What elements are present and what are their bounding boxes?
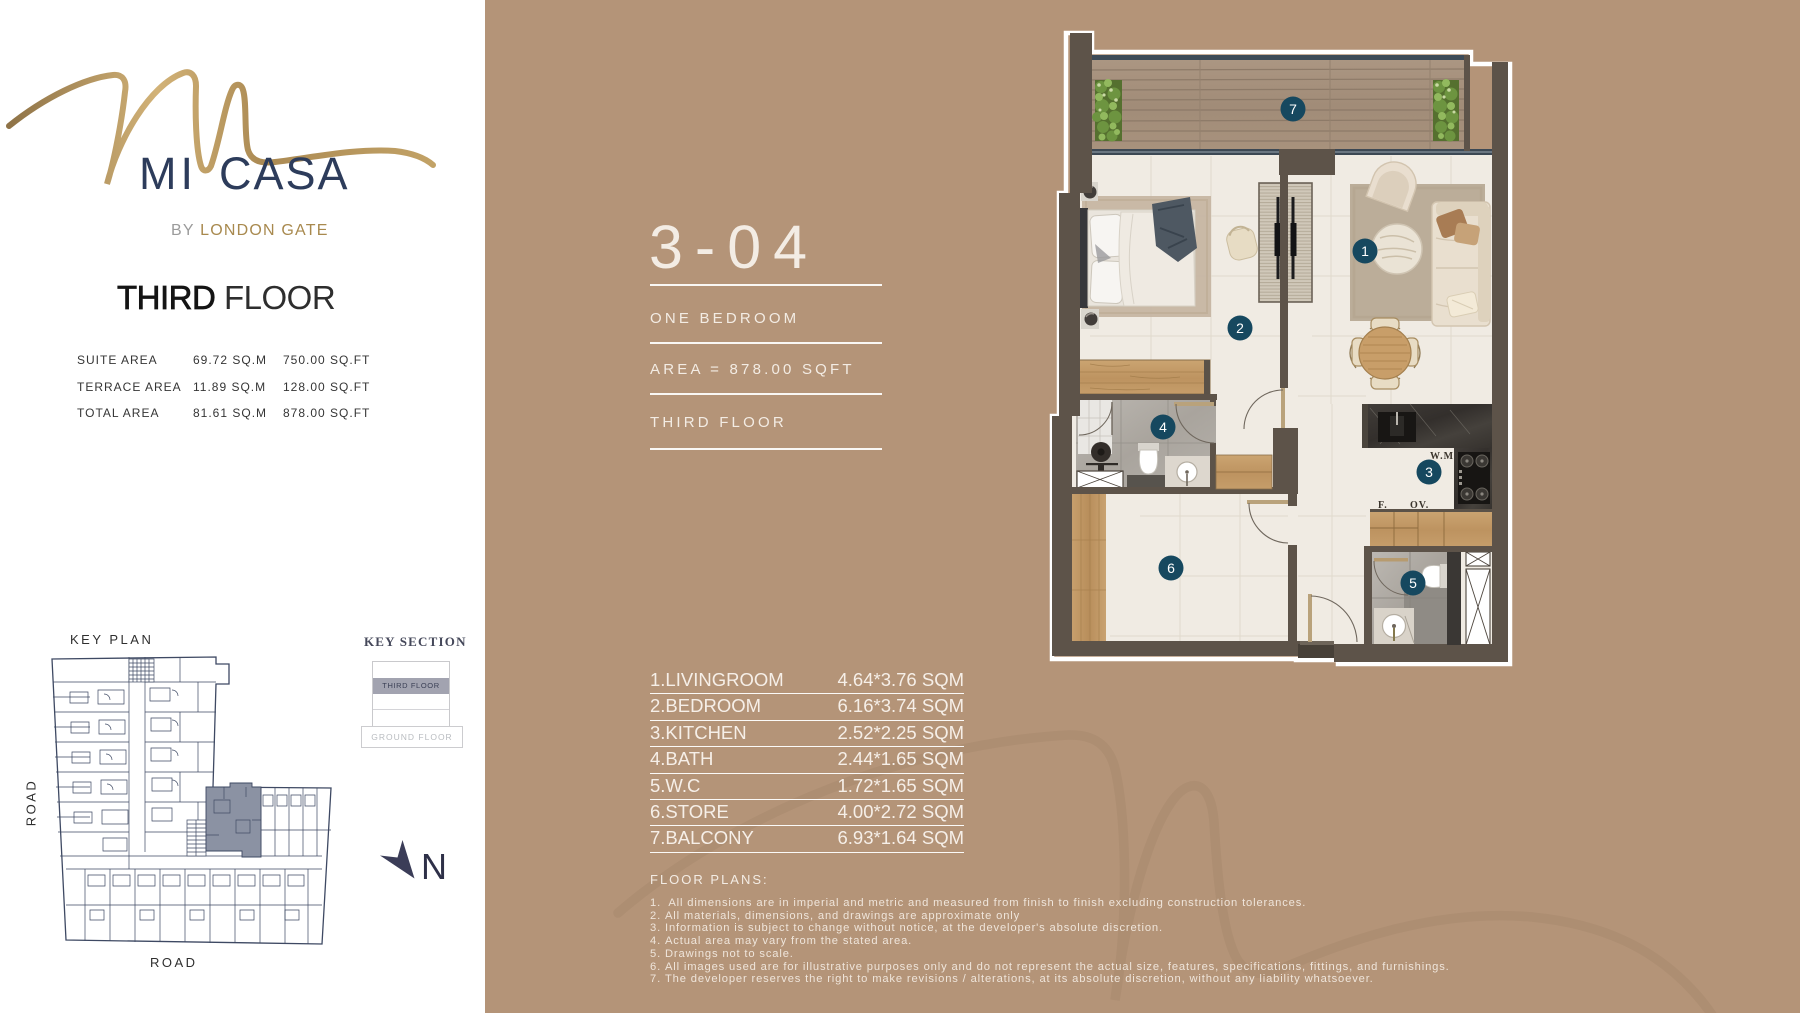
svg-text:W.M: W.M: [1430, 451, 1454, 462]
svg-text:1: 1: [1361, 243, 1369, 259]
svg-text:7: 7: [1289, 101, 1297, 117]
svg-text:MI: MI: [139, 148, 197, 199]
svg-text:BY LONDON GATE: BY LONDON GATE: [171, 222, 329, 239]
svg-text:6: 6: [1167, 560, 1175, 576]
svg-text:4: 4: [1159, 419, 1167, 435]
svg-text:CASA: CASA: [219, 148, 350, 199]
svg-text:3: 3: [1425, 464, 1433, 480]
svg-text:2: 2: [1236, 320, 1244, 336]
svg-text:OV.: OV.: [1410, 500, 1429, 511]
svg-text:5: 5: [1409, 575, 1417, 591]
svg-text:N: N: [421, 846, 447, 887]
svg-text:F.: F.: [1378, 500, 1388, 511]
